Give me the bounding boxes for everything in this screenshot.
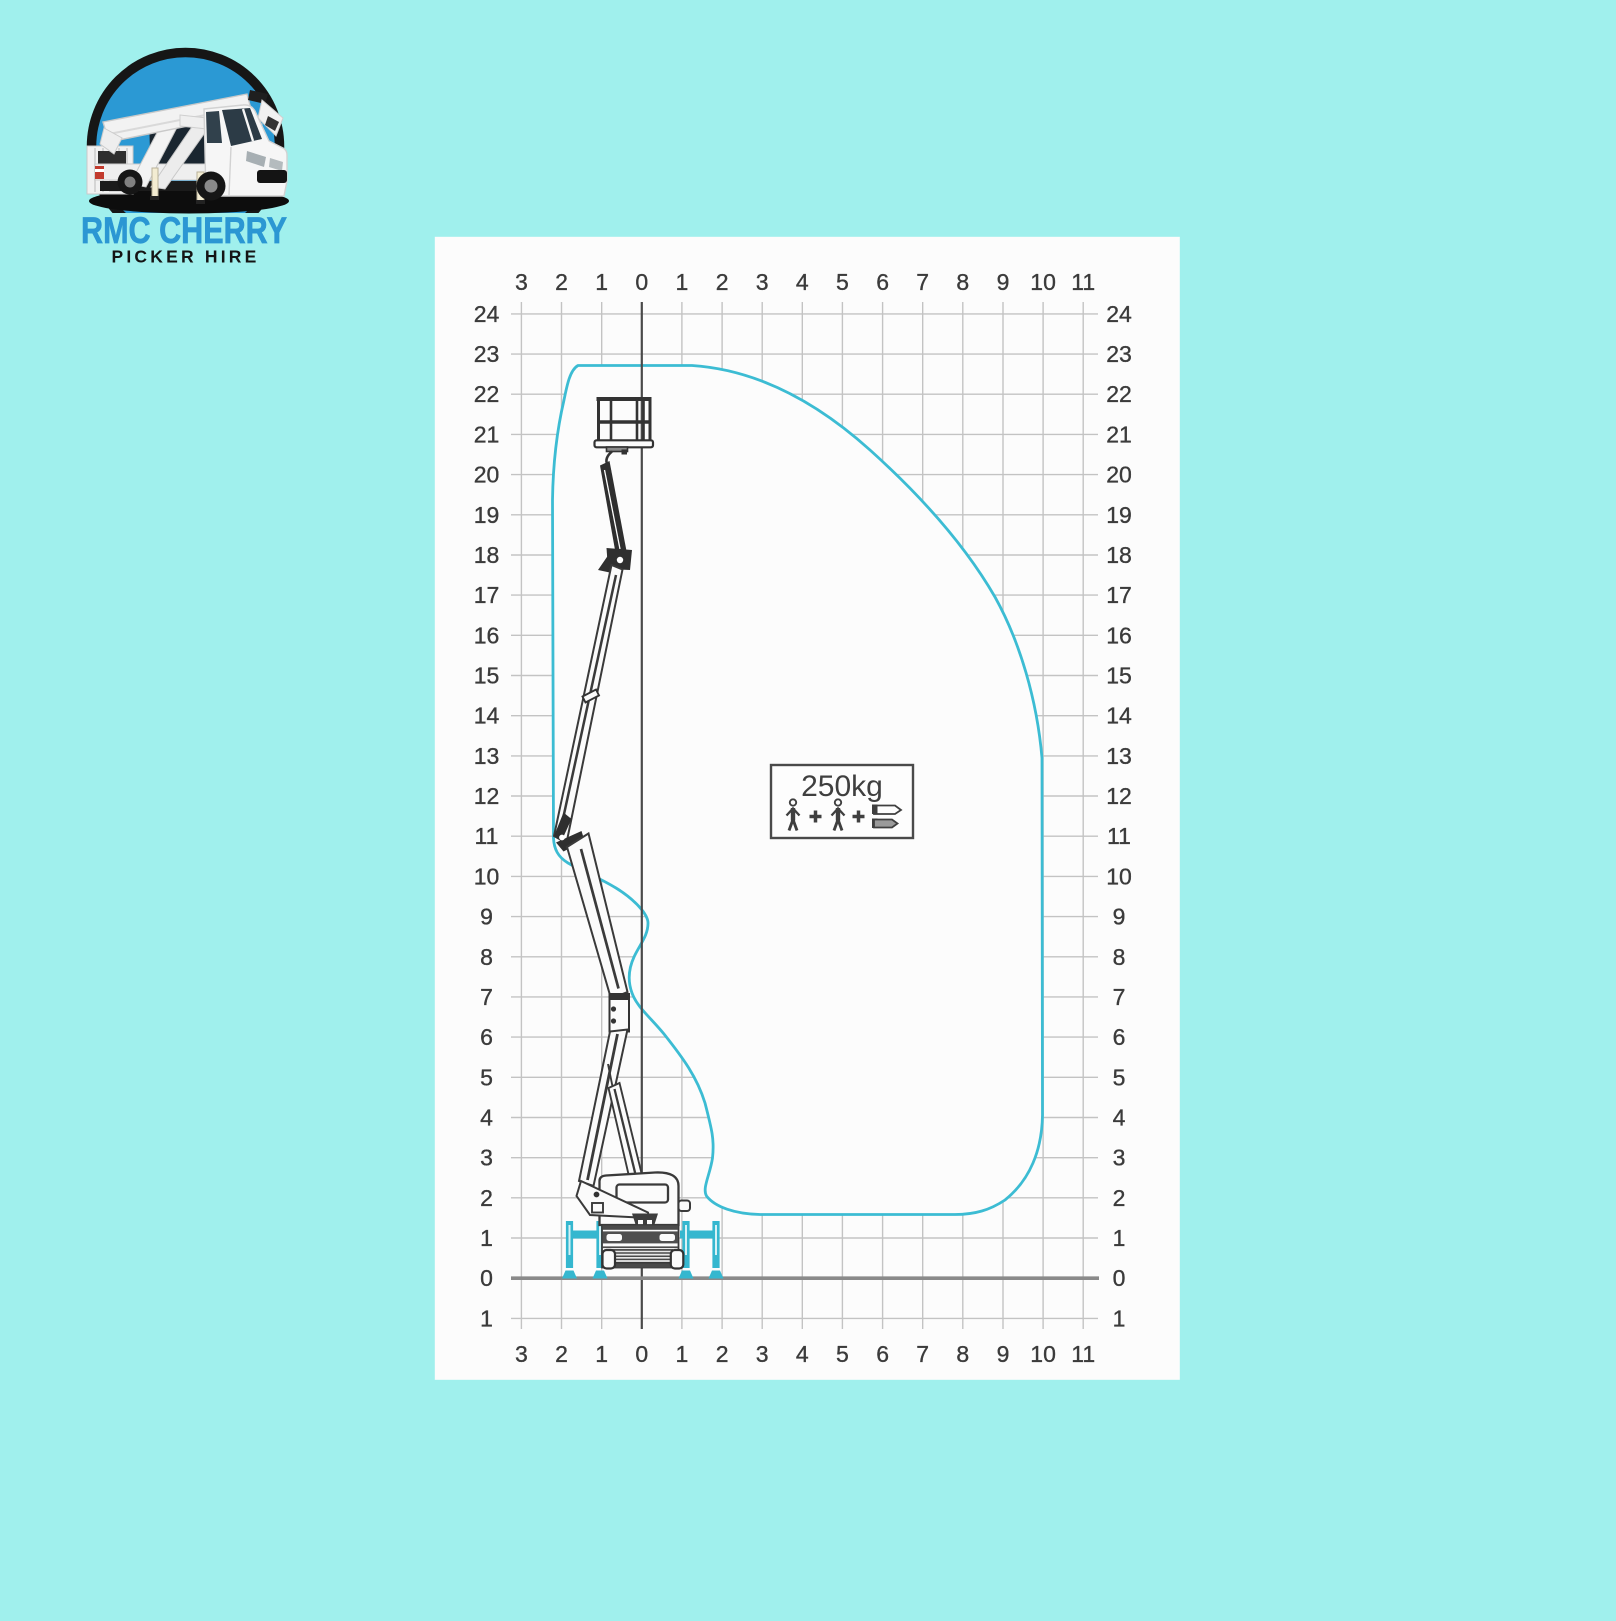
svg-text:21: 21 [474, 421, 500, 447]
svg-text:5: 5 [836, 1341, 849, 1367]
svg-text:0: 0 [480, 1265, 493, 1291]
svg-text:9: 9 [1113, 904, 1126, 930]
svg-text:23: 23 [1106, 341, 1132, 367]
svg-text:24: 24 [474, 301, 500, 327]
svg-text:15: 15 [1106, 663, 1132, 689]
svg-text:3: 3 [480, 1145, 493, 1171]
svg-text:19: 19 [1106, 502, 1132, 528]
svg-text:2: 2 [716, 1341, 729, 1367]
svg-text:11: 11 [1071, 1341, 1095, 1367]
svg-text:13: 13 [1106, 743, 1132, 769]
svg-text:7: 7 [480, 984, 493, 1010]
svg-text:2: 2 [555, 269, 568, 295]
svg-text:22: 22 [474, 381, 500, 407]
svg-text:0: 0 [1113, 1265, 1126, 1291]
svg-text:0: 0 [635, 1341, 648, 1367]
svg-text:2: 2 [716, 269, 729, 295]
svg-text:2: 2 [1113, 1185, 1126, 1211]
svg-text:9: 9 [480, 904, 493, 930]
svg-text:3: 3 [1113, 1145, 1126, 1171]
svg-text:6: 6 [876, 269, 889, 295]
svg-text:250kg: 250kg [801, 770, 883, 803]
svg-text:8: 8 [480, 944, 493, 970]
svg-text:5: 5 [836, 269, 849, 295]
svg-text:11: 11 [1107, 823, 1131, 849]
svg-text:17: 17 [474, 582, 500, 608]
svg-text:1: 1 [676, 269, 689, 295]
svg-text:6: 6 [876, 1341, 889, 1367]
svg-text:16: 16 [474, 622, 500, 648]
svg-text:6: 6 [1113, 1024, 1126, 1050]
svg-text:1: 1 [676, 1341, 689, 1367]
svg-text:4: 4 [796, 269, 809, 295]
svg-text:8: 8 [956, 1341, 969, 1367]
svg-text:4: 4 [1113, 1105, 1126, 1131]
svg-text:20: 20 [474, 462, 500, 488]
svg-text:11: 11 [475, 823, 499, 849]
svg-text:18: 18 [1106, 542, 1132, 568]
svg-text:14: 14 [474, 703, 500, 729]
svg-text:1: 1 [1113, 1225, 1126, 1251]
svg-text:21: 21 [1106, 421, 1132, 447]
svg-text:3: 3 [515, 1341, 528, 1367]
svg-text:15: 15 [474, 663, 500, 689]
svg-text:17: 17 [1106, 582, 1132, 608]
svg-text:7: 7 [916, 269, 929, 295]
svg-text:7: 7 [916, 1341, 929, 1367]
svg-text:10: 10 [1030, 1341, 1056, 1367]
svg-text:PICKER HIRE: PICKER HIRE [112, 247, 260, 267]
svg-text:19: 19 [474, 502, 500, 528]
svg-text:3: 3 [515, 269, 528, 295]
svg-text:1: 1 [1113, 1305, 1126, 1331]
svg-text:1: 1 [595, 269, 608, 295]
svg-text:1: 1 [595, 1341, 608, 1367]
svg-text:10: 10 [1106, 863, 1132, 889]
svg-text:9: 9 [997, 1341, 1010, 1367]
svg-text:RMC CHERRY: RMC CHERRY [81, 209, 287, 251]
svg-text:24: 24 [1106, 301, 1132, 327]
svg-text:13: 13 [474, 743, 500, 769]
svg-text:22: 22 [1106, 381, 1132, 407]
svg-text:8: 8 [1113, 944, 1126, 970]
svg-text:5: 5 [480, 1064, 493, 1090]
svg-text:20: 20 [1106, 462, 1132, 488]
svg-text:23: 23 [474, 341, 500, 367]
svg-text:2: 2 [555, 1341, 568, 1367]
svg-text:1: 1 [480, 1225, 493, 1251]
svg-text:18: 18 [474, 542, 500, 568]
svg-text:8: 8 [956, 269, 969, 295]
svg-text:12: 12 [474, 783, 500, 809]
svg-text:16: 16 [1106, 622, 1132, 648]
svg-text:12: 12 [1106, 783, 1132, 809]
svg-text:3: 3 [756, 1341, 769, 1367]
svg-text:1: 1 [480, 1305, 493, 1331]
svg-text:4: 4 [796, 1341, 809, 1367]
svg-text:4: 4 [480, 1105, 493, 1131]
svg-text:7: 7 [1113, 984, 1126, 1010]
svg-text:5: 5 [1113, 1064, 1126, 1090]
svg-text:11: 11 [1071, 269, 1095, 295]
svg-text:14: 14 [1106, 703, 1132, 729]
svg-text:0: 0 [635, 269, 648, 295]
svg-text:10: 10 [1030, 269, 1056, 295]
svg-text:2: 2 [480, 1185, 493, 1211]
svg-text:9: 9 [997, 269, 1010, 295]
svg-text:6: 6 [480, 1024, 493, 1050]
svg-text:10: 10 [474, 863, 500, 889]
svg-text:3: 3 [756, 269, 769, 295]
